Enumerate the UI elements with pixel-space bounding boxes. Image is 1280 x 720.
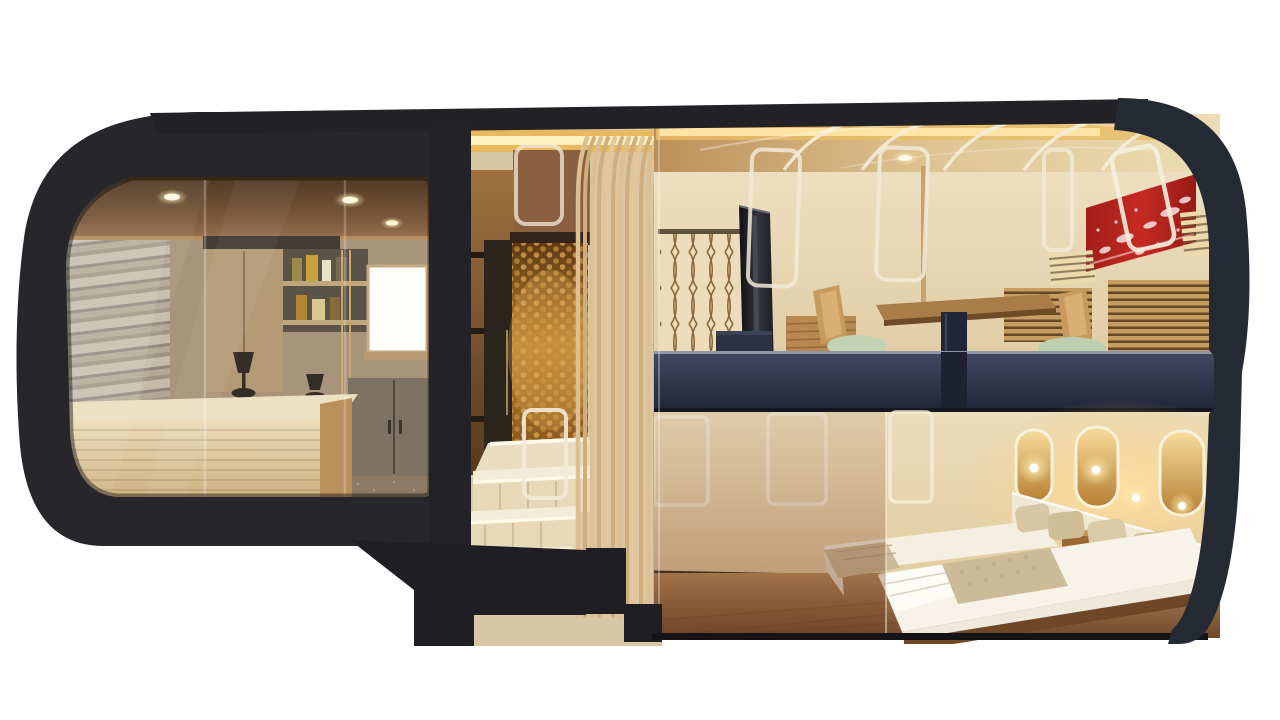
cabinet-handle bbox=[399, 420, 402, 434]
carpet-dot bbox=[413, 489, 416, 492]
carpet-dot bbox=[393, 481, 396, 484]
bottle bbox=[330, 297, 340, 320]
deck-band-highlight bbox=[654, 351, 1218, 354]
lower-cabinets bbox=[348, 378, 437, 476]
glass-tint bbox=[654, 412, 886, 638]
lounge-room bbox=[60, 170, 440, 510]
bar-counter-post bbox=[320, 398, 352, 498]
cabinet-handle bbox=[388, 420, 391, 434]
ceiling-spotlight bbox=[386, 220, 398, 226]
pedestal-through-band bbox=[941, 352, 967, 410]
carpet-dot bbox=[373, 489, 376, 492]
cove-light-core bbox=[660, 128, 1100, 136]
right-section bbox=[654, 114, 1280, 652]
train-cutaway-rendering bbox=[0, 0, 1280, 720]
shelf-board bbox=[283, 320, 368, 325]
lattice-screen bbox=[1108, 280, 1216, 352]
jar bbox=[322, 260, 331, 281]
train-cutaway-canvas bbox=[0, 0, 1280, 720]
bottle bbox=[296, 295, 307, 320]
undercarriage-step bbox=[586, 548, 626, 614]
window-sill bbox=[364, 352, 431, 360]
lounge-window bbox=[368, 266, 427, 352]
shelf-board bbox=[283, 281, 368, 286]
bottle bbox=[306, 255, 318, 281]
carpet-dot bbox=[357, 483, 360, 486]
floor-bottom-line bbox=[652, 633, 1208, 640]
jar bbox=[312, 299, 325, 320]
bottle bbox=[292, 258, 302, 281]
